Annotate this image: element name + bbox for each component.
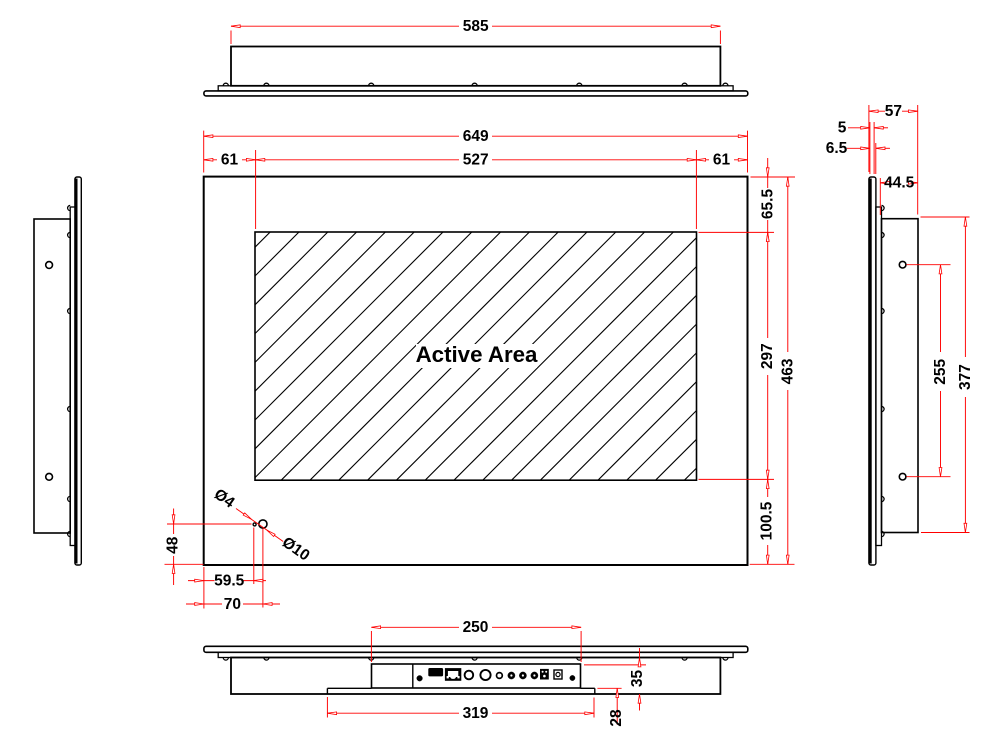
svg-text:Active Area: Active Area [416,342,538,367]
svg-text:463: 463 [779,358,796,384]
svg-text:44.5: 44.5 [884,175,915,192]
svg-text:649: 649 [463,128,489,145]
svg-text:5: 5 [838,119,847,136]
svg-text:61: 61 [713,152,731,169]
svg-text:6.5: 6.5 [826,140,848,157]
svg-text:65.5: 65.5 [760,189,777,220]
svg-text:255: 255 [932,358,949,384]
svg-text:250: 250 [463,619,489,636]
svg-text:377: 377 [957,364,974,390]
svg-text:527: 527 [463,152,489,169]
svg-text:100.5: 100.5 [758,501,775,540]
svg-text:59.5: 59.5 [214,572,245,589]
svg-text:48: 48 [164,536,181,554]
svg-text:35: 35 [629,670,646,688]
svg-text:70: 70 [224,596,241,613]
svg-text:28: 28 [608,709,625,727]
svg-text:61: 61 [221,152,239,169]
svg-text:585: 585 [463,18,489,35]
svg-text:57: 57 [885,103,902,120]
svg-text:319: 319 [463,705,489,722]
svg-text:297: 297 [759,343,776,369]
